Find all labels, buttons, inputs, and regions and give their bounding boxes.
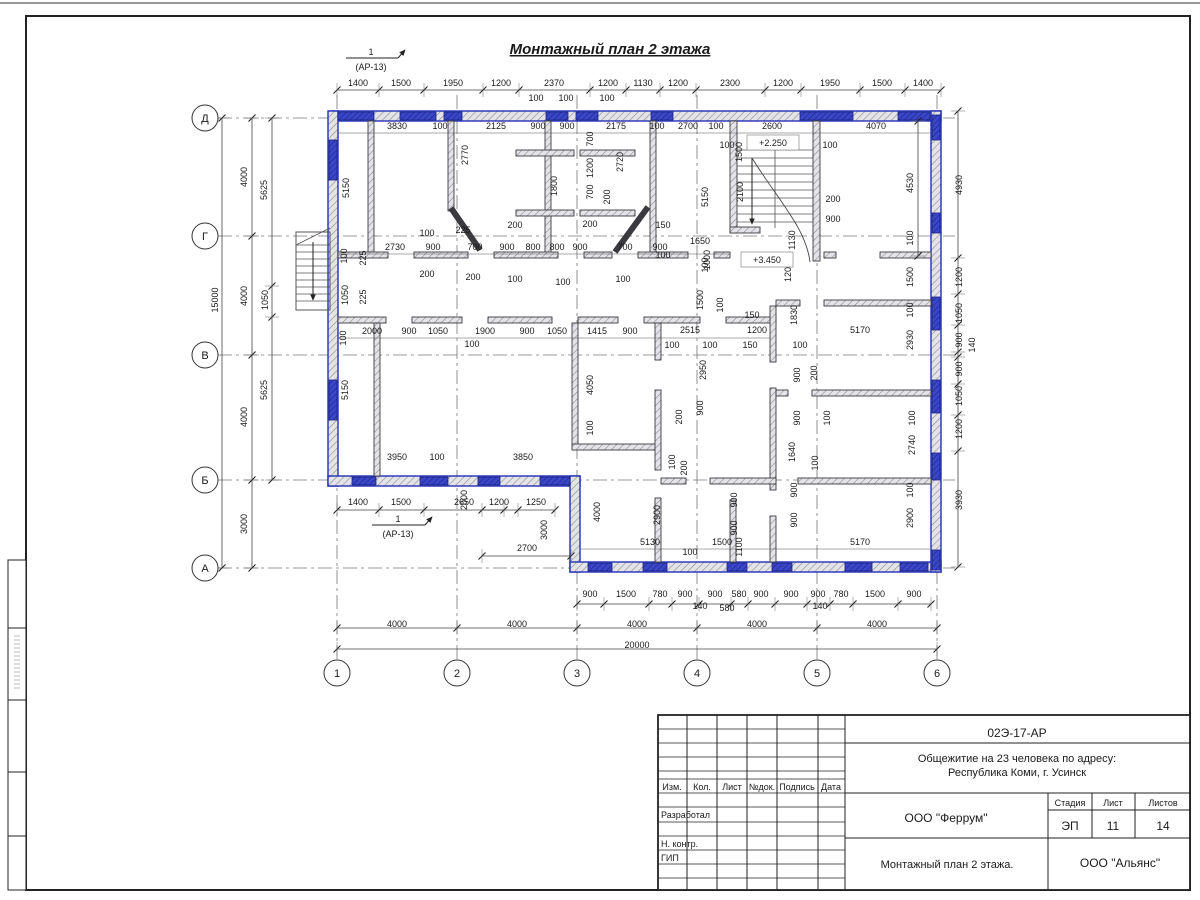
dim-label: 2700 [517, 543, 537, 553]
dim-label: 5150 [341, 178, 351, 198]
dim-label: 1130 [787, 230, 797, 249]
dim-label: 100 [905, 230, 915, 245]
dim-label: 1800 [549, 176, 559, 196]
window [651, 112, 673, 120]
dim-label: 4000 [387, 619, 407, 629]
dim-label: 150 [655, 220, 670, 230]
window [576, 112, 598, 120]
dim-label: 1050 [428, 326, 448, 336]
interior-wall [710, 478, 776, 484]
dim-label: 100 [599, 93, 614, 103]
dim-label: 1500 [872, 78, 892, 88]
window [932, 380, 940, 413]
axis-label: 2 [454, 668, 460, 680]
dim-label: 1500 [616, 589, 636, 599]
dim-label: 2000 [362, 326, 382, 336]
dim-label: 4000 [592, 502, 602, 522]
dim-label: 1500 [391, 497, 411, 507]
dim-label: 900 [810, 589, 825, 599]
title-block: 02Э-17-АР Общежитие на 23 человека по ад… [658, 715, 1190, 890]
dim-label: 200 [582, 219, 597, 229]
axis-label: А [201, 563, 209, 575]
window [772, 563, 792, 571]
doc-number: 02Э-17-АР [987, 726, 1046, 740]
dim-label: 100 [464, 339, 479, 349]
dim-label: 100 [649, 121, 664, 131]
svg-text:(АР-13): (АР-13) [355, 62, 386, 72]
interior-wall [824, 252, 836, 258]
dim-label: 100 [907, 410, 917, 425]
dim-label: 1830 [789, 305, 799, 325]
dim-label: 1100 [734, 537, 744, 556]
dim-label: 3000 [539, 520, 549, 540]
svg-text:1: 1 [368, 47, 373, 57]
left-stamp-column [8, 560, 26, 890]
dim-label: 900 [582, 589, 597, 599]
window [727, 563, 747, 571]
window [932, 550, 940, 570]
dim-label: 900 [425, 242, 440, 252]
dim-label: 1500 [712, 537, 732, 547]
tb-row-label: Н. контр. [661, 839, 698, 849]
dim-label: 100 [715, 297, 725, 312]
dim-label: 900 [401, 326, 416, 336]
dim-label: 200 [465, 272, 480, 282]
interior-wall [448, 121, 454, 211]
dim-label: 1500 [695, 290, 705, 310]
dim-label: 5170 [850, 325, 870, 335]
dim-label: 2730 [385, 242, 405, 252]
dim-label: 4000 [239, 167, 249, 187]
interior-wall [714, 252, 730, 258]
svg-text:1: 1 [395, 514, 400, 524]
dim-label: 4000 [627, 619, 647, 629]
dim-label: 900 [906, 589, 921, 599]
interior-wall [572, 444, 661, 450]
dim-label: 100 [429, 452, 444, 462]
dim-label: 1200 [668, 78, 688, 88]
dim-label: 100 [719, 140, 734, 150]
dim-label: 1900 [475, 326, 495, 336]
window [898, 112, 930, 120]
dim-label: 1415 [587, 326, 607, 336]
dim-label: 700 [617, 242, 632, 252]
dim-label: 900 [572, 242, 587, 252]
window [932, 213, 940, 233]
dim-label: 700 [467, 242, 482, 252]
dim-label: 1200 [747, 325, 767, 335]
dim-label: 1500 [734, 142, 744, 162]
contractor-name: ООО "Альянс" [1080, 856, 1160, 870]
tb-column-header: Лист [722, 782, 742, 792]
drawing-sheet: 1400150019501200237012001130120023001200… [0, 0, 1200, 900]
dim-label: 200 [674, 409, 684, 424]
dim-label: 100 [338, 330, 348, 345]
dim-label: 1200 [491, 78, 511, 88]
dim-label: 5150 [340, 380, 350, 400]
dim-label: 140 [812, 601, 827, 611]
dim-label: 900 [783, 589, 798, 599]
interior-wall [813, 121, 820, 261]
window [845, 563, 872, 571]
dim-label: 2125 [486, 121, 506, 131]
sheets-total: 14 [1156, 819, 1170, 833]
dim-label: 225 [358, 250, 368, 265]
tb-column-header: Подпись [779, 782, 815, 792]
dim-label: 2000 [459, 490, 469, 510]
dim-label: 2720 [615, 152, 625, 172]
dim-label: 3000 [239, 514, 249, 534]
axis-label: 6 [934, 668, 940, 680]
dim-label: 1500 [865, 589, 885, 599]
dim-label: 100 [667, 454, 677, 469]
dim-label: 2600 [762, 121, 782, 131]
sheet-label: Лист [1103, 798, 1123, 808]
axis-label: Г [202, 231, 208, 243]
dim-label: 900 [792, 367, 802, 382]
dim-label: 140 [967, 337, 977, 352]
interior-wall [650, 121, 656, 255]
dim-label: 100 [810, 455, 820, 470]
dim-label: 2900 [905, 508, 915, 528]
dim-label: 780 [833, 589, 848, 599]
dim-label: 4050 [585, 375, 595, 395]
sheet-number: 11 [1107, 819, 1120, 833]
dim-label: 900 [707, 589, 722, 599]
dim-label: 150 [742, 340, 757, 350]
exterior-wall [570, 562, 941, 572]
window [329, 140, 337, 180]
level-mark: +2.250 [759, 138, 787, 148]
dim-label: 1050 [954, 386, 964, 406]
dim-label: 580 [731, 589, 746, 599]
dim-label: 5130 [640, 537, 660, 547]
tb-column-header: Дата [821, 782, 841, 792]
dim-label: 200 [507, 220, 522, 230]
window [352, 477, 376, 485]
section-marker-top: 1 (АР-13) [346, 47, 405, 72]
window [338, 112, 374, 120]
dim-label: 100 [905, 482, 915, 497]
dim-label: 100 [507, 274, 522, 284]
dim-label: 800 [525, 242, 540, 252]
dim-label: 100 [702, 340, 717, 350]
dim-label: 780 [652, 589, 667, 599]
plan-title: Монтажный план 2 этажа [510, 41, 711, 58]
dim-label: 100 [615, 274, 630, 284]
dim-label: 2515 [680, 325, 700, 335]
axis-label: 3 [574, 668, 580, 680]
axis-label: Б [201, 475, 208, 487]
interior-wall [776, 390, 788, 396]
dim-label: 100 [432, 121, 447, 131]
dim-label: 900 [499, 242, 514, 252]
dim-label: 1130 [633, 78, 652, 88]
window [588, 563, 612, 571]
dim-label: 1650 [690, 236, 710, 246]
dim-label: 900 [825, 214, 840, 224]
dim-label: 3850 [513, 452, 533, 462]
dim-label: 1640 [787, 442, 797, 462]
dim-label: 900 [622, 326, 637, 336]
dim-label: 2930 [905, 330, 915, 350]
dim-label: 2175 [606, 121, 626, 131]
dim-label: 15000 [210, 287, 220, 312]
interior-wall [770, 388, 776, 490]
sheets-label: Листов [1148, 798, 1177, 808]
tb-column-header: Кол. [693, 782, 711, 792]
dim-label: 900 [954, 332, 964, 347]
interior-wall [655, 390, 661, 470]
window [329, 380, 337, 420]
dim-label: 200 [825, 194, 840, 204]
dim-label: 100 [528, 93, 543, 103]
stage-label: Стадия [1055, 798, 1086, 808]
dim-label: 5625 [259, 180, 269, 200]
dim-label: 4000 [867, 619, 887, 629]
dim-label: 2700 [678, 121, 698, 131]
dim-label: 140 [692, 601, 707, 611]
project-name-1: Общежитие на 23 человека по адресу: [918, 753, 1116, 765]
dim-label: 3830 [387, 121, 407, 131]
dim-label: 2900 [652, 505, 662, 525]
dim-label: 1950 [820, 78, 840, 88]
dim-label: 2740 [907, 435, 917, 455]
dim-label: 900 [519, 326, 534, 336]
org-name: ООО "Феррум" [905, 811, 988, 825]
interior-wall [655, 323, 661, 360]
dim-label: 5625 [259, 380, 269, 400]
tb-column-header: №док. [749, 782, 775, 792]
dim-label: 200 [809, 365, 819, 380]
interior-wall [516, 150, 574, 156]
dim-label: 1950 [443, 78, 463, 88]
interior-wall [516, 210, 574, 216]
interior-wall [578, 317, 618, 323]
interior-wall [488, 317, 552, 323]
dim-label: 200 [602, 189, 612, 204]
dim-label: 700 [585, 184, 595, 199]
stage-value: ЭП [1061, 819, 1078, 833]
dim-label: 2770 [460, 145, 470, 165]
interior-wall [414, 252, 468, 258]
dim-label: 4000 [239, 286, 249, 306]
window [400, 112, 436, 120]
axis-label: Д [201, 113, 209, 125]
level-mark: +3.450 [753, 255, 781, 265]
dim-label: 100 [792, 340, 807, 350]
dim-label: 900 [677, 589, 692, 599]
tb-row-label: ГИП [661, 853, 679, 863]
dim-label: 150 [744, 310, 759, 320]
tb-row-label: Разработал [661, 810, 710, 820]
dim-label: 4000 [239, 407, 249, 427]
dim-label: 100 [555, 277, 570, 287]
tb-column-header: Изм. [662, 782, 681, 792]
interior-wall [770, 306, 776, 362]
window [478, 477, 500, 485]
dim-label: 5150 [700, 187, 710, 207]
window [932, 115, 940, 140]
window [546, 112, 568, 120]
interior-wall [770, 516, 776, 562]
dim-label: 1500 [905, 267, 915, 287]
interior-wall [880, 252, 931, 258]
drawing-name: Монтажный план 2 этажа. [881, 859, 1014, 871]
interior-wall [368, 121, 374, 255]
interior-wall [644, 317, 700, 323]
dim-label: 900 [530, 121, 545, 131]
dim-label: 1500 [391, 78, 411, 88]
dim-label: 3950 [387, 452, 407, 462]
exterior-wall [570, 476, 580, 572]
interior-wall [572, 323, 578, 447]
interior-wall [812, 390, 931, 396]
dim-label: 900 [789, 512, 799, 527]
dim-label: 1200 [585, 158, 595, 178]
dim-label: 5170 [850, 537, 870, 547]
dim-label: 100 [822, 140, 837, 150]
dim-label: 900 [729, 492, 739, 507]
dim-label: 100 [655, 250, 670, 260]
dim-label: 1200 [598, 78, 618, 88]
dim-label: 2100 [735, 182, 745, 202]
dim-label: 100 [682, 547, 697, 557]
axis-label: 5 [814, 668, 820, 680]
dim-label: 4070 [866, 121, 886, 131]
interior-wall [584, 252, 612, 258]
dim-label: 4530 [905, 173, 915, 193]
dim-label: 100 [558, 93, 573, 103]
window [540, 477, 570, 485]
dim-label: 2300 [720, 78, 740, 88]
floor-plan-canvas: 1400150019501200237012001130120023001200… [0, 0, 1200, 900]
dim-label: 900 [729, 520, 739, 535]
dim-label: 2950 [698, 360, 708, 380]
dim-label: 20000 [624, 640, 649, 650]
dim-label: 3930 [954, 490, 964, 510]
dim-label: 100 [708, 121, 723, 131]
dim-label: 4000 [747, 619, 767, 629]
dim-label: 800 [549, 242, 564, 252]
interior-wall [338, 317, 386, 323]
axis-label: 4 [694, 668, 700, 680]
interior-wall [494, 252, 558, 258]
window [900, 563, 928, 571]
interior-wall [730, 121, 737, 233]
window [800, 112, 853, 120]
project-name-2: Республика Коми, г. Усинск [948, 767, 1086, 779]
dim-label: 1050 [954, 303, 964, 323]
dim-label: 900 [954, 361, 964, 376]
interior-wall [661, 478, 686, 484]
window [932, 297, 940, 330]
window [444, 112, 462, 120]
dim-label: 1400 [348, 497, 368, 507]
svg-text:(АР-13): (АР-13) [382, 529, 413, 539]
dim-label: 2370 [544, 78, 564, 88]
dim-label: 1200 [773, 78, 793, 88]
interior-wall [412, 317, 462, 323]
dim-label: 100 [339, 248, 349, 263]
dim-label: 225 [358, 289, 368, 304]
dim-label: 100 [905, 302, 915, 317]
section-marker-bottom: 1 (АР-13) [372, 514, 432, 539]
dim-label: 900 [753, 589, 768, 599]
dim-label: 100 [700, 257, 710, 272]
exterior-wall [931, 111, 941, 572]
dim-label: 225 [455, 225, 470, 235]
interior-wall [580, 150, 635, 156]
dim-label: 1200 [954, 267, 964, 287]
dim-label: 580 [719, 603, 734, 613]
dim-label: 1400 [348, 78, 368, 88]
dim-label: 1050 [260, 290, 270, 310]
dim-label: 100 [664, 340, 679, 350]
dim-label: 4000 [507, 619, 527, 629]
window [932, 453, 940, 480]
interior-wall [580, 210, 635, 216]
dim-label: 700 [585, 131, 595, 146]
dim-label: 1050 [340, 285, 350, 305]
dim-label: 900 [559, 121, 574, 131]
dim-label: 900 [792, 410, 802, 425]
dim-label: 4930 [954, 175, 964, 195]
dim-label: 1250 [526, 497, 546, 507]
dim-label: 900 [695, 400, 705, 415]
window [420, 477, 448, 485]
interior-wall [374, 323, 380, 476]
axis-label: 1 [334, 668, 340, 680]
dim-label: 100 [822, 410, 832, 425]
interior-wall [730, 227, 760, 233]
dim-label: 1050 [547, 326, 567, 336]
dim-label: 100 [585, 420, 595, 435]
axis-label: В [201, 350, 208, 362]
dim-label: 1200 [489, 497, 509, 507]
dim-label: 1400 [913, 78, 933, 88]
dim-label: 200 [679, 460, 689, 475]
dim-label: 100 [419, 228, 434, 238]
dim-label: 200 [419, 269, 434, 279]
dim-label: 1200 [954, 419, 964, 439]
dim-label: 900 [789, 482, 799, 497]
window [643, 563, 667, 571]
